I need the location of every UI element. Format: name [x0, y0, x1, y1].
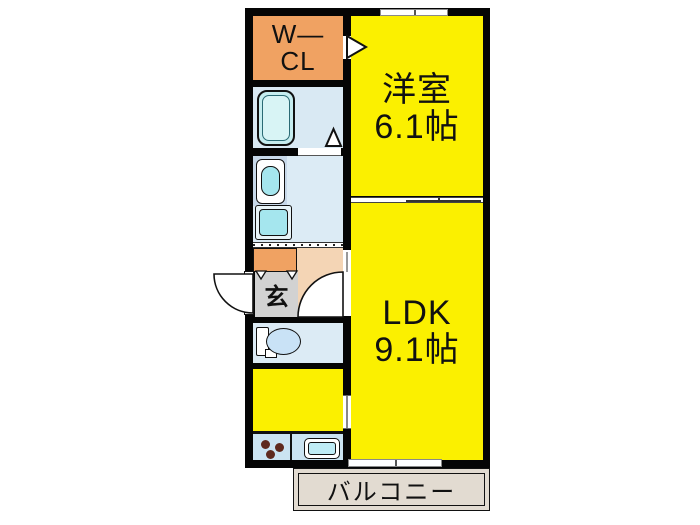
toilet-bowl-icon — [266, 328, 301, 355]
wcl-label-line1: W— — [272, 21, 325, 48]
genkan-label: 玄 — [265, 277, 289, 312]
sliding-door-western-ldk-icon — [351, 197, 483, 203]
western-room-area: 6.1帖 — [374, 109, 459, 146]
floor-plan: W— CL 洋室 6.1帖 LDK 9.1帖 玄 — [0, 0, 700, 525]
window-sash-divider — [414, 10, 416, 15]
vanity-sink-icon — [256, 159, 285, 204]
hallway-door-swing-icon — [296, 270, 345, 319]
window-sash-divider — [395, 460, 397, 466]
ldk-name: LDK — [382, 295, 451, 332]
kitchen-door-line — [346, 396, 348, 428]
stove-burner-icon — [266, 450, 275, 459]
ldk-area: 9.1帖 — [374, 332, 459, 369]
bathtub-icon — [257, 90, 295, 146]
washing-machine-pan-icon — [255, 205, 292, 240]
stove-burner-icon — [261, 440, 270, 449]
bathtub-rim — [262, 95, 290, 141]
balcony: バルコニー — [293, 468, 490, 511]
balcony-inner: バルコニー — [298, 473, 485, 506]
wcl-label-line2: CL — [272, 48, 325, 75]
accordion-dashes — [253, 244, 343, 246]
genkan-step-marks-icon — [255, 270, 300, 281]
room-ldk: LDK 9.1帖 — [351, 203, 483, 460]
wcl-door-icon — [345, 33, 370, 61]
balcony-label: バルコニー — [327, 472, 457, 507]
sliding-door-dashes — [353, 200, 406, 201]
vanity-basin — [261, 166, 280, 196]
window-top-icon — [380, 9, 448, 16]
wcl-label: W— CL — [272, 21, 325, 75]
kitchen-door-icon — [343, 395, 351, 429]
sliding-door-midline — [406, 200, 481, 202]
sliding-door-tick — [438, 198, 440, 202]
western-room-name: 洋室 — [382, 72, 452, 109]
room-western: 洋室 6.1帖 — [351, 16, 483, 196]
room-walk-in-closet: W— CL — [253, 16, 343, 80]
shoe-cabinet — [253, 248, 297, 272]
washroom-accordion-door-icon — [253, 242, 343, 248]
kitchen-sink-icon — [304, 438, 340, 459]
hallway-door-frame — [346, 252, 348, 272]
stove-burner-icon — [275, 443, 284, 452]
bathroom-door-icon — [324, 127, 344, 149]
entrance-door-swing-icon — [212, 272, 256, 316]
washing-machine-pan-inner — [259, 209, 288, 236]
kitchen-sink-basin — [308, 442, 336, 455]
window-balcony-door-icon — [348, 459, 442, 467]
bathroom-door-gap — [298, 148, 341, 156]
counter-divider — [290, 434, 292, 460]
kitchen-counter-icon — [253, 431, 343, 460]
